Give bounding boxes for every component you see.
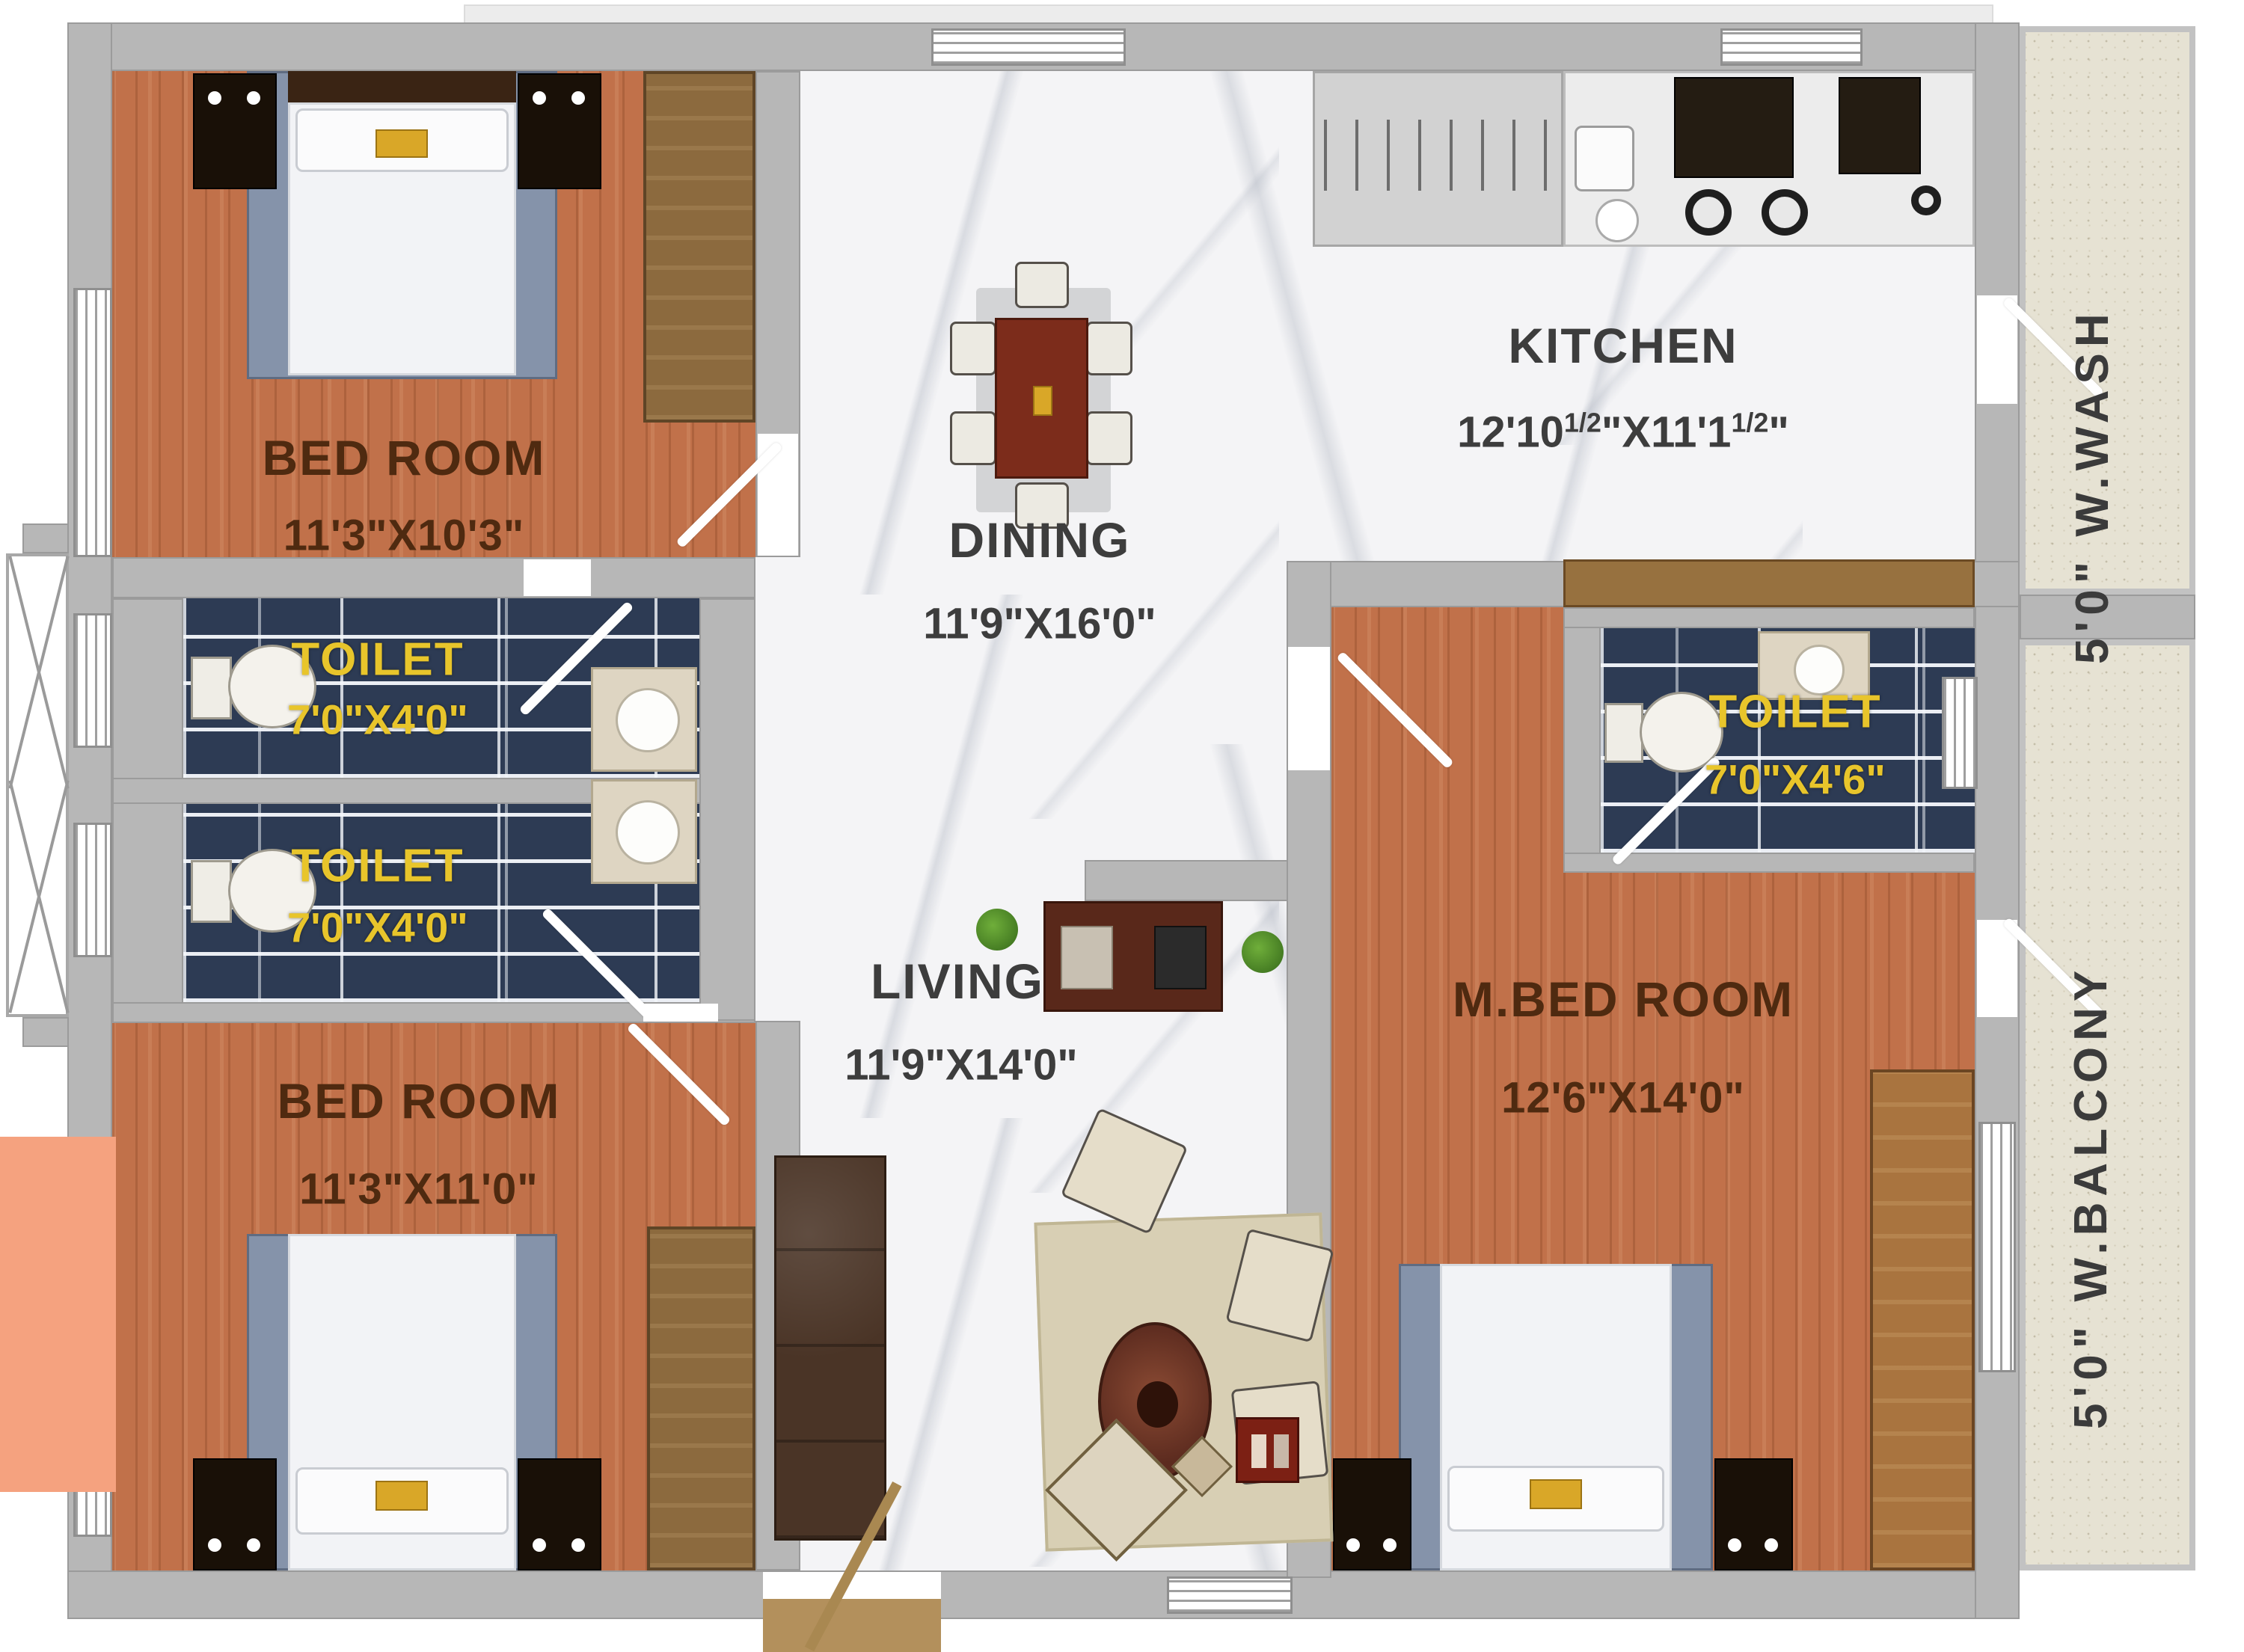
living-dims: 11'9"X14'0" xyxy=(844,1040,1078,1090)
toilet-master-dims: 7'0"X4'6" xyxy=(1705,755,1886,804)
shaft-wall-stub xyxy=(22,1017,69,1047)
window xyxy=(73,288,112,557)
wardrobe xyxy=(647,1226,755,1570)
plant-icon xyxy=(1242,931,1284,973)
dining-label: DINING xyxy=(949,512,1131,568)
toilet-fixture-icon xyxy=(191,860,232,923)
dining-table xyxy=(995,318,1088,479)
wash-basin xyxy=(591,667,697,772)
burner-icon xyxy=(1685,189,1732,236)
nightstand xyxy=(1333,1458,1411,1570)
burner-icon xyxy=(1762,189,1808,236)
bedroom-bottom-dims: 11'3"X11'0" xyxy=(299,1164,538,1215)
adjacent-unit-block xyxy=(0,1137,116,1492)
window xyxy=(73,823,112,957)
dining-chair xyxy=(1015,262,1069,308)
bedroom-bottom-label: BED ROOM xyxy=(278,1072,561,1129)
dining-set xyxy=(939,258,1144,538)
master-bedroom-door-opening xyxy=(1288,647,1330,770)
bedroom-top-bottom-wall xyxy=(112,557,755,598)
shaft-wall-stub xyxy=(22,523,69,553)
dining-dims: 11'9"X16'0" xyxy=(923,599,1156,649)
stair-shaft xyxy=(6,553,69,1017)
bed xyxy=(1399,1264,1713,1570)
tv-console xyxy=(1043,901,1223,1012)
nightstand xyxy=(518,73,601,189)
bedroom-top-dims: 11'3"X10'3" xyxy=(283,511,525,561)
toilet-fixture-icon xyxy=(1604,703,1643,763)
kitchen-sink-icon xyxy=(1575,126,1634,191)
dining-chair xyxy=(950,322,996,375)
kitchen-counter xyxy=(1313,71,1563,247)
balcony-door-opening xyxy=(1977,920,2017,1017)
bed xyxy=(247,1234,557,1570)
kitchen-label: KITCHEN xyxy=(1508,317,1738,374)
toilet-left-bottom-label: TOILET xyxy=(291,840,464,893)
master-bedroom-dims: 12'6"X14'0" xyxy=(1501,1073,1745,1123)
bedroom-bottom-door-opening xyxy=(643,1004,718,1022)
window xyxy=(1978,1122,2016,1372)
right-wall xyxy=(1975,22,2020,1619)
loft-above-toilet xyxy=(1563,559,1975,607)
window xyxy=(1720,28,1863,66)
wardrobe xyxy=(643,71,755,423)
bedroom-top-label: BED ROOM xyxy=(263,429,546,486)
toilets-right-wall xyxy=(699,598,755,1021)
toilet-door-opening xyxy=(524,559,591,596)
window xyxy=(1942,677,1978,789)
toilet-left-outer-wall xyxy=(112,598,183,1021)
wash-basin xyxy=(591,779,697,884)
nightstand xyxy=(193,1458,277,1570)
bottom-wall xyxy=(67,1570,2020,1619)
oven-icon xyxy=(1839,77,1921,174)
toilet-left-bottom-dims: 7'0"X4'0" xyxy=(287,903,468,952)
entrance-threshold xyxy=(763,1599,941,1652)
roof-projection-strip xyxy=(464,4,1993,24)
wash-label: 5'0" W.WASH xyxy=(2066,247,2133,725)
master-toilet-top-wall xyxy=(1563,607,1975,628)
dining-chair xyxy=(950,411,996,465)
toilet-left-top-label: TOILET xyxy=(291,633,464,687)
master-toilet-left-wall xyxy=(1563,607,1601,873)
counter-bowl-icon xyxy=(1595,199,1639,242)
nightstand xyxy=(193,73,277,189)
bed xyxy=(247,71,557,379)
master-bedroom-label: M.BED ROOM xyxy=(1453,971,1794,1028)
magazine-table xyxy=(1236,1417,1299,1483)
window xyxy=(73,613,112,748)
living-label: LIVING xyxy=(871,953,1044,1010)
toilet-left-top-dims: 7'0"X4'0" xyxy=(287,696,468,744)
balcony-label: 5'0" W.BALCONY xyxy=(2064,920,2132,1473)
kitchen-dims: 12'101/2"X11'11/2" xyxy=(1457,407,1789,457)
dining-chair xyxy=(1086,322,1132,375)
plant-icon xyxy=(976,909,1018,951)
toilet-master-label: TOILET xyxy=(1708,686,1881,739)
toilet-fixture-icon xyxy=(191,657,232,719)
nightstand xyxy=(518,1458,601,1570)
sofa xyxy=(774,1155,886,1541)
window xyxy=(1167,1576,1293,1614)
stove-icon xyxy=(1674,77,1794,178)
nightstand xyxy=(1714,1458,1793,1570)
burner-icon xyxy=(1911,185,1941,215)
kitchen-counter-appliances xyxy=(1563,71,1975,247)
dining-chair xyxy=(1086,411,1132,465)
floor-plan: BED ROOM 11'3"X10'3" TOILET 7'0"X4'0" TO… xyxy=(0,0,2244,1652)
window xyxy=(931,28,1126,66)
wardrobe xyxy=(1870,1069,1975,1570)
